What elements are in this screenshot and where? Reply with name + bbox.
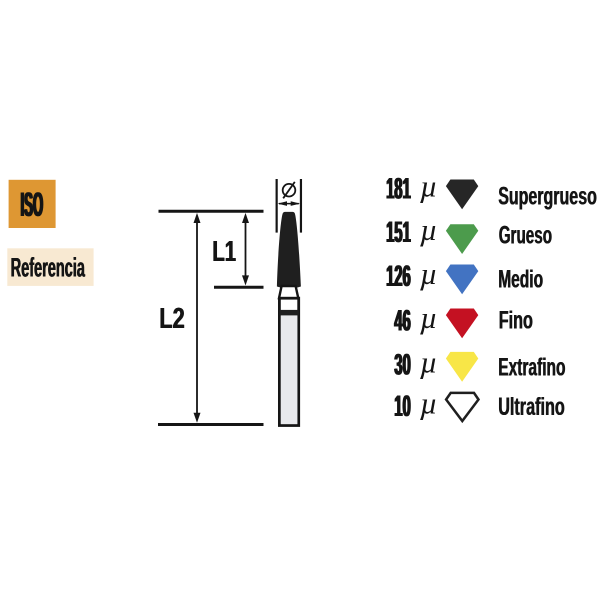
svg-text:µ: µ bbox=[420, 300, 438, 335]
svg-text:Medio: Medio bbox=[498, 266, 543, 294]
svg-text:Supergrueso: Supergrueso bbox=[498, 183, 597, 211]
svg-text:46: 46 bbox=[395, 305, 411, 338]
svg-text:Fino: Fino bbox=[499, 306, 533, 335]
svg-text:151: 151 bbox=[387, 217, 412, 250]
svg-text:µ: µ bbox=[420, 256, 438, 291]
svg-text:µ: µ bbox=[420, 168, 438, 203]
svg-text:µ: µ bbox=[420, 212, 438, 247]
svg-text:L2: L2 bbox=[160, 303, 185, 335]
svg-text:126: 126 bbox=[387, 261, 412, 294]
svg-text:Ultrafino: Ultrafino bbox=[498, 393, 565, 422]
svg-text:181: 181 bbox=[387, 173, 412, 206]
svg-text:Grueso: Grueso bbox=[499, 222, 552, 250]
svg-text:Referencia: Referencia bbox=[11, 252, 86, 283]
svg-text:µ: µ bbox=[420, 344, 438, 379]
svg-text:L1: L1 bbox=[213, 235, 237, 267]
svg-text:µ: µ bbox=[420, 386, 438, 421]
svg-text:Extrafino: Extrafino bbox=[498, 354, 565, 382]
svg-text:10: 10 bbox=[395, 391, 411, 424]
svg-text:ISO: ISO bbox=[21, 187, 44, 224]
svg-text:30: 30 bbox=[395, 349, 411, 382]
